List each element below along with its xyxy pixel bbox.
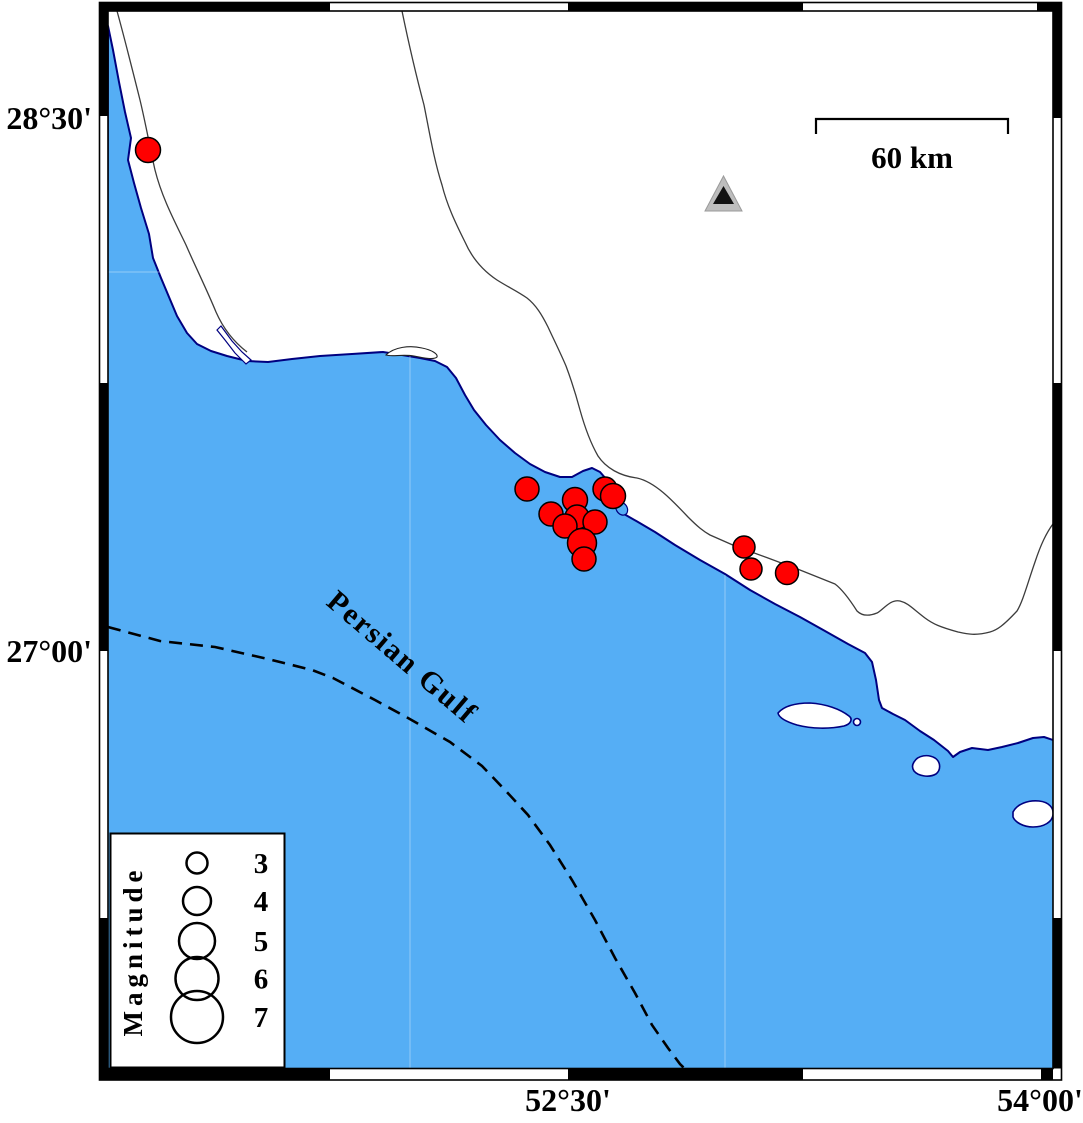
- legend-magnitude-value: 3: [254, 848, 269, 880]
- earthquake-marker: [740, 558, 762, 580]
- legend-title: Magnitude: [118, 865, 148, 1036]
- lat-label-2830: 28°30': [6, 100, 92, 136]
- earthquake-marker: [136, 138, 161, 163]
- earthquake-marker: [572, 547, 596, 571]
- magnitude-legend: Magnitude 34567: [111, 834, 285, 1068]
- lon-label-5230: 52°30': [525, 1082, 611, 1118]
- earthquake-marker: [733, 536, 755, 558]
- lon-label-5400: 54°00': [997, 1082, 1083, 1118]
- legend-magnitude-value: 7: [254, 1002, 269, 1034]
- legend-magnitude-value: 6: [254, 964, 269, 996]
- earthquake-marker: [776, 562, 799, 585]
- lat-label-2700: 27°00': [6, 633, 92, 669]
- seismicity-map: Persian Gulf 60 km Magnitude 34567: [0, 0, 1083, 1118]
- legend-magnitude-value: 4: [254, 886, 269, 918]
- legend-magnitude-value: 5: [254, 926, 269, 958]
- earthquake-marker: [601, 484, 626, 509]
- scale-bar-label: 60 km: [871, 140, 953, 175]
- earthquake-marker: [515, 477, 539, 501]
